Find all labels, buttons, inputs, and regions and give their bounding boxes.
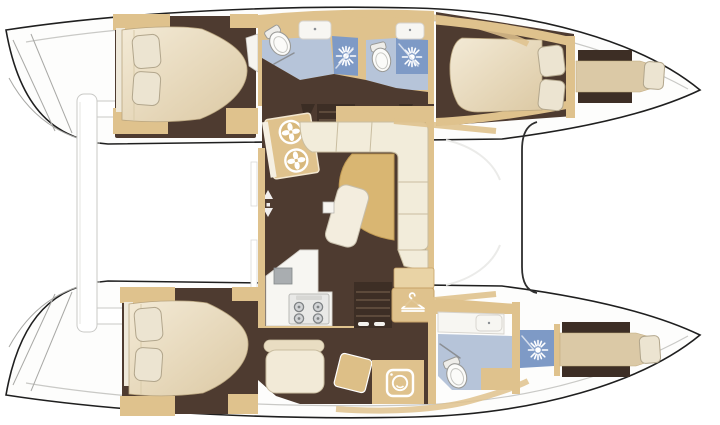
- pillow: [134, 307, 164, 342]
- galley-appliance: [274, 268, 292, 284]
- stove-icon: [289, 294, 329, 324]
- sink-basin: [299, 21, 331, 39]
- pillow: [639, 335, 661, 363]
- aft-cabin-starboard: [120, 287, 258, 416]
- stern-platform: [77, 94, 97, 332]
- floor-plan-svg: [0, 0, 720, 425]
- sink-basin: [476, 315, 502, 331]
- pillow: [537, 45, 565, 78]
- pillow: [643, 61, 665, 89]
- pillow: [132, 34, 162, 69]
- catamaran-floor-plan: [0, 0, 720, 425]
- aft-cabin-port: [113, 14, 258, 138]
- saloon: [251, 104, 434, 332]
- sink-basin: [396, 23, 424, 39]
- washer-cabinet: [372, 360, 424, 404]
- heads-port: [258, 10, 434, 106]
- pillow: [537, 79, 565, 111]
- chaise-seat: [266, 350, 324, 393]
- table-leg: [323, 202, 334, 213]
- bridgedeck-front: [446, 122, 537, 293]
- aft-steps: [354, 282, 392, 330]
- double-berth: [450, 38, 542, 112]
- shower-icon: [529, 341, 548, 360]
- pillow: [134, 347, 163, 382]
- pillow: [132, 71, 161, 106]
